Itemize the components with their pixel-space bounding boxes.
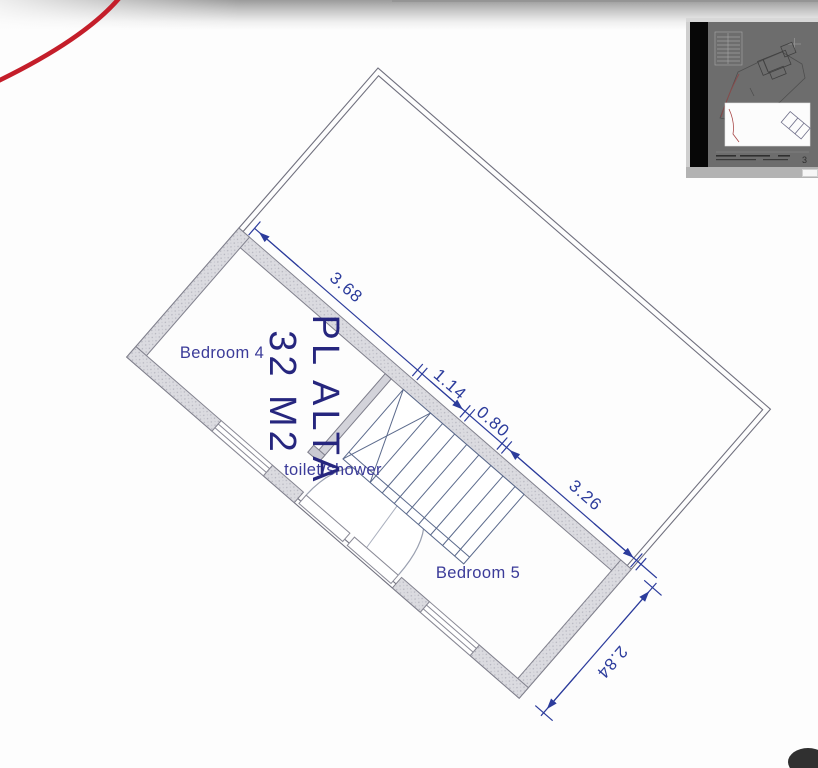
wall-southwest-d [470, 645, 528, 698]
floor-area: 32 M2 [261, 330, 303, 456]
wall-southeast [509, 560, 632, 698]
dim-2-84: 2.84 [593, 642, 632, 682]
thumb-title-block [715, 32, 742, 65]
navigator-bottom-bar[interactable] [686, 167, 818, 178]
dim-3-26: 3.26 [565, 476, 605, 515]
room-label-bedroom4: Bedroom 4 [180, 344, 264, 362]
floor-title: PL ALTA [304, 315, 346, 486]
navigator-black-margin [690, 22, 708, 167]
window-bedroom5 [420, 602, 479, 656]
dim-3-68: 3.68 [326, 268, 366, 307]
thumb-house-shape [756, 42, 802, 82]
wall-southwest-c [392, 577, 429, 612]
scanned-floorplan-page: 3.68 1.14 0.80 3.26 2.84 Bedroom 4 toile… [0, 0, 818, 768]
thumb-footer: 3 [716, 152, 809, 165]
navigator-page-thumbnail[interactable]: 3 [708, 22, 818, 167]
navigator-viewport[interactable] [725, 103, 810, 146]
navigator-sketch: 3 [708, 22, 818, 167]
navigator-zoom-box[interactable] [802, 169, 818, 177]
room-label-bedroom5: Bedroom 5 [436, 564, 520, 582]
sheet-number: 3 [802, 155, 807, 165]
red-pen-line [0, 0, 121, 82]
navigator-body: 3 [686, 22, 818, 167]
navigator-panel[interactable]: 3 [686, 18, 818, 178]
